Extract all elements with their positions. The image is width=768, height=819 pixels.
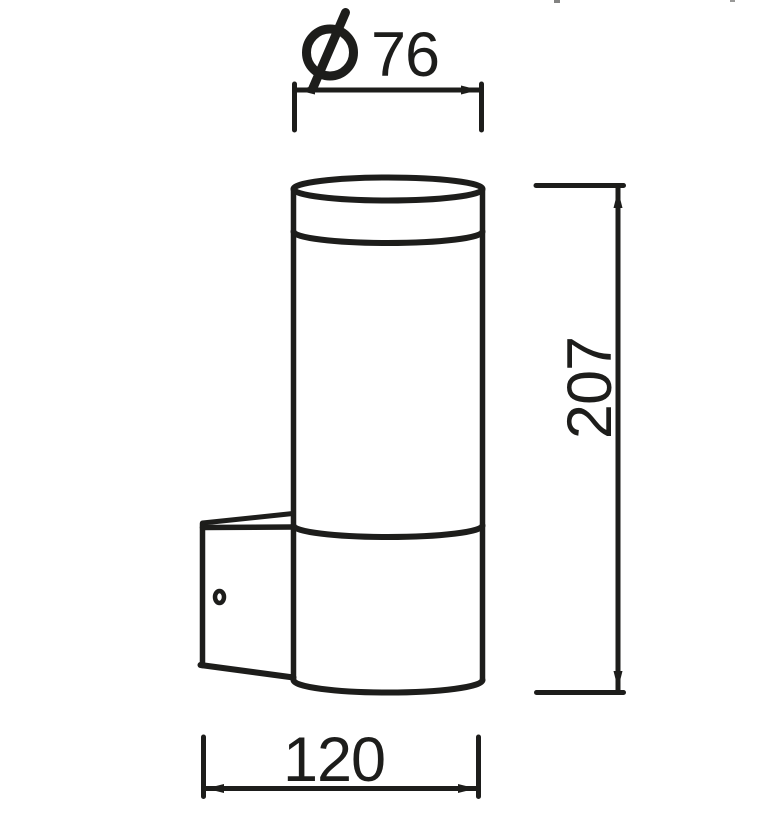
bracket-top-upper-edge (203, 514, 294, 524)
mounting-bracket (201, 514, 295, 678)
wall-lamp-dimension-drawing: 76 207 120 (0, 0, 768, 819)
crop-artifact-right (730, 0, 735, 2)
width-arrowhead-right (458, 784, 476, 793)
technical-drawing-canvas: 76 207 120 (0, 0, 768, 819)
cylinder-body (294, 178, 483, 693)
cylinder-top-ellipse (294, 178, 483, 201)
crop-artifact-left (554, 0, 560, 3)
screw-hole (215, 591, 224, 603)
cylinder-lower-band-arc (294, 526, 483, 538)
height-value-label: 207 (555, 337, 625, 439)
bracket-bottom-edge (201, 665, 294, 678)
diameter-arrowhead-left (297, 86, 315, 95)
height-arrowhead-bottom (614, 671, 623, 689)
width-arrowhead-left (206, 784, 224, 793)
cylinder-cap-bottom-arc (294, 232, 483, 244)
diameter-value-label: 76 (371, 20, 439, 90)
height-arrowhead-top (614, 190, 623, 208)
width-value-label: 120 (283, 725, 385, 795)
diameter-symbol-icon (307, 13, 354, 90)
bracket-top-lower-edge (203, 527, 295, 528)
cylinder-bottom-arc (294, 680, 483, 693)
diameter-arrowhead-right (461, 86, 479, 95)
